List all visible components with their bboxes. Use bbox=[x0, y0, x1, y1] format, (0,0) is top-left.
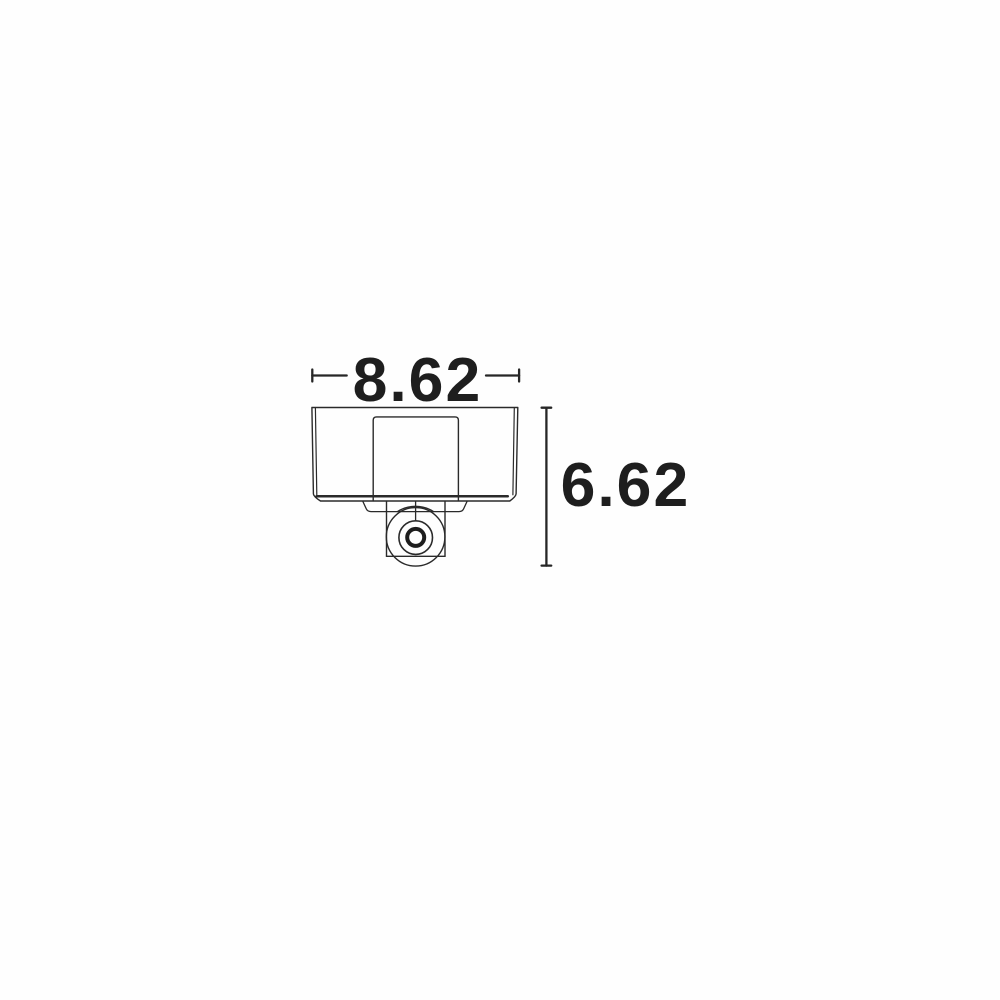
svg-text:6.62: 6.62 bbox=[561, 450, 691, 520]
svg-text:8.62: 8.62 bbox=[353, 345, 483, 415]
